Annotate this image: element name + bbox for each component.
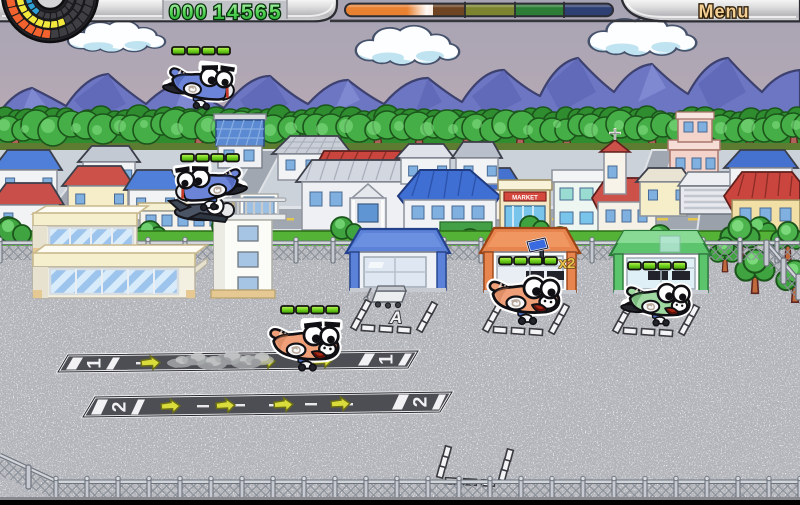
svg-text:14565: 14565 bbox=[213, 1, 281, 24]
svg-text:A: A bbox=[389, 308, 402, 327]
svg-text:MARKET: MARKET bbox=[512, 196, 538, 202]
svg-text:2: 2 bbox=[411, 397, 432, 408]
svg-text:x2: x2 bbox=[559, 255, 576, 272]
svg-text:1: 1 bbox=[377, 354, 398, 365]
svg-text:Menu: Menu bbox=[699, 2, 750, 22]
svg-text:1: 1 bbox=[85, 358, 106, 369]
svg-text:2: 2 bbox=[110, 402, 131, 413]
svg-text:000: 000 bbox=[169, 1, 207, 24]
